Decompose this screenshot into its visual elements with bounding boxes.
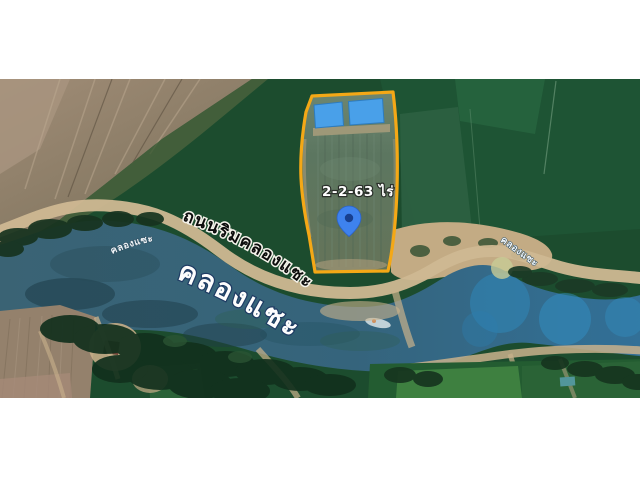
map-art: 2-2-63 ไร่ ถนนริมคลองแซะ คลองแซะ คลองแซะ… bbox=[0, 79, 640, 398]
area-label: 2-2-63 ไร่ bbox=[322, 183, 394, 200]
screenshot-canvas: 2-2-63 ไร่ ถนนริมคลองแซะ คลองแซะ คลองแซะ… bbox=[0, 0, 640, 480]
land-plot bbox=[301, 92, 398, 272]
satellite-photo: 2-2-63 ไร่ ถนนริมคลองแซะ คลองแซะ คลองแซะ… bbox=[0, 79, 640, 398]
